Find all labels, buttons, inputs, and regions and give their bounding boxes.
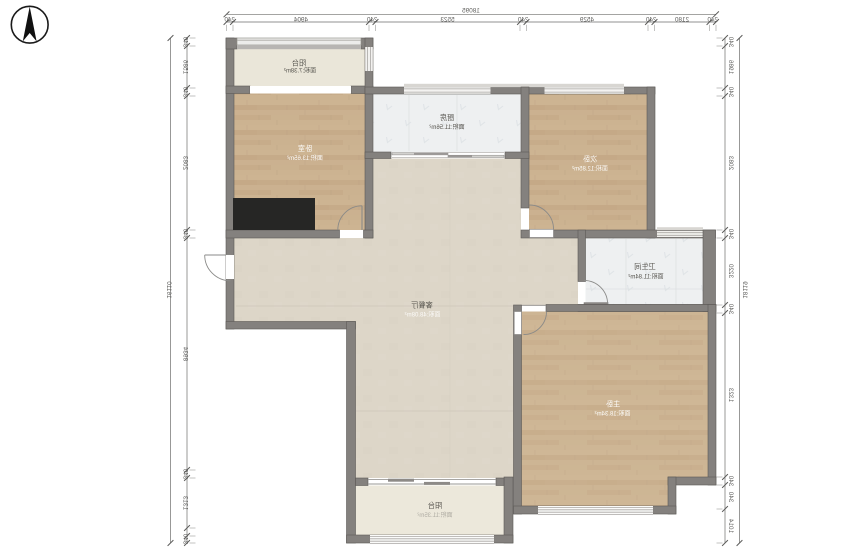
svg-text:240: 240 bbox=[224, 16, 235, 23]
svg-text:1313: 1313 bbox=[182, 495, 189, 510]
svg-text:340: 340 bbox=[182, 36, 189, 47]
svg-text:16110: 16110 bbox=[165, 281, 172, 299]
svg-text:340: 340 bbox=[182, 468, 189, 479]
svg-text:340: 340 bbox=[182, 228, 189, 239]
svg-text:340: 340 bbox=[182, 86, 189, 97]
svg-text:18095: 18095 bbox=[462, 8, 480, 15]
svg-text:面积:11.35m²: 面积:11.35m² bbox=[417, 511, 452, 519]
svg-text:4904: 4904 bbox=[293, 16, 308, 23]
svg-text:面积:13.65m²: 面积:13.65m² bbox=[287, 154, 323, 162]
svg-text:客餐厅: 客餐厅 bbox=[411, 301, 433, 310]
svg-text:阳台: 阳台 bbox=[292, 59, 306, 68]
svg-text:2083: 2083 bbox=[182, 155, 189, 170]
svg-text:240: 240 bbox=[707, 16, 718, 23]
svg-text:4529: 4529 bbox=[579, 16, 594, 23]
svg-text:卫生间: 卫生间 bbox=[634, 262, 656, 271]
svg-text:240: 240 bbox=[517, 16, 528, 23]
svg-text:面积:11.84m²: 面积:11.84m² bbox=[628, 273, 663, 281]
svg-text:面积:18.34m²: 面积:18.34m² bbox=[595, 410, 631, 418]
svg-text:240: 240 bbox=[366, 16, 377, 23]
svg-text:340: 340 bbox=[727, 491, 734, 502]
svg-text:1986: 1986 bbox=[727, 59, 734, 74]
svg-text:主卧: 主卧 bbox=[606, 400, 620, 409]
svg-text:面积:11.56m²: 面积:11.56m² bbox=[429, 123, 464, 131]
svg-text:1586: 1586 bbox=[182, 59, 189, 74]
svg-text:面积:7.38m²: 面积:7.38m² bbox=[284, 67, 316, 75]
svg-text:3220: 3220 bbox=[727, 263, 734, 278]
svg-text:340: 340 bbox=[727, 228, 734, 239]
svg-text:340: 340 bbox=[182, 533, 189, 544]
svg-text:2083: 2083 bbox=[727, 155, 734, 170]
svg-text:240: 240 bbox=[645, 16, 656, 23]
svg-text:阳台: 阳台 bbox=[428, 501, 442, 510]
svg-text:8934: 8934 bbox=[182, 346, 189, 361]
svg-text:1323: 1323 bbox=[727, 387, 734, 402]
svg-text:卧室: 卧室 bbox=[298, 144, 312, 153]
svg-text:18119: 18119 bbox=[741, 281, 748, 299]
svg-text:340: 340 bbox=[727, 86, 734, 97]
svg-text:1014: 1014 bbox=[727, 518, 734, 533]
svg-text:面积:48.08m²: 面积:48.08m² bbox=[405, 311, 441, 319]
svg-text:5523: 5523 bbox=[440, 16, 455, 23]
svg-text:340: 340 bbox=[727, 303, 734, 314]
svg-text:340: 340 bbox=[727, 475, 734, 486]
svg-text:340: 340 bbox=[727, 36, 734, 47]
svg-text:次卧: 次卧 bbox=[583, 155, 597, 164]
svg-text:厨房: 厨房 bbox=[440, 113, 454, 122]
svg-text:面积:12.85m²: 面积:12.85m² bbox=[572, 165, 608, 173]
svg-text:2180: 2180 bbox=[674, 16, 689, 23]
